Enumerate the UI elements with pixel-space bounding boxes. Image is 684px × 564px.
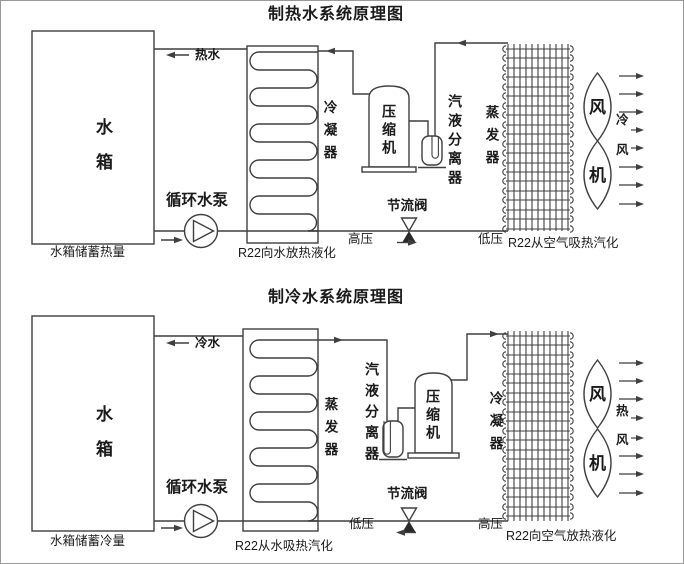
fan-char-bottom: 机 [589, 165, 606, 186]
fan-symbol [584, 73, 611, 209]
tank-caption: 水箱储蓄热量 [50, 245, 125, 261]
heating-diagram-graphics [32, 31, 644, 248]
tank-label: 水箱 [94, 118, 111, 188]
air-char-cold: 冷 [616, 113, 629, 129]
tank-label: 水箱 [94, 405, 111, 475]
airflow-arrows [619, 360, 644, 496]
evaporator-label: 蒸发器 [323, 397, 337, 465]
water-coil-caption: R22从水吸热汽化 [235, 539, 333, 555]
evaporator-air-coil [503, 44, 573, 232]
cooling-title: 制冷水系统原理图 [268, 288, 404, 308]
compressor-label: 压缩机 [426, 389, 440, 443]
separator-symbol [418, 136, 446, 168]
separator-label: 汽液分离器 [448, 94, 462, 189]
condenser-label: 冷凝器 [322, 100, 336, 168]
compressor-label: 压缩机 [382, 104, 396, 158]
valve-label: 节流阀 [387, 198, 428, 215]
condenser-air-coil [503, 331, 573, 521]
pump-label: 循环水泵 [166, 478, 228, 497]
high-pressure-label: 高压 [348, 232, 373, 248]
low-pressure-label: 低压 [349, 517, 374, 533]
separator-symbol [379, 421, 407, 460]
heating-title: 制热水系统原理图 [268, 5, 404, 25]
pump-label: 循环水泵 [166, 191, 228, 210]
fan-char-top: 风 [589, 384, 606, 405]
evaporator-water-coil [243, 329, 318, 531]
condenser-label: 冷凝器 [488, 391, 502, 459]
circulation-pump-symbol [185, 505, 218, 538]
schematic-drawing [1, 1, 684, 564]
fan-char-bottom: 机 [589, 453, 606, 474]
cooling-diagram-graphics [32, 316, 644, 538]
air-char-wind: 风 [616, 143, 629, 159]
cold-water-label: 冷水 [195, 336, 220, 352]
valve-label: 节流阀 [387, 486, 428, 503]
air-coil-caption: R22从空气吸热汽化 [508, 236, 618, 252]
throttle-valve-symbol [402, 218, 417, 242]
condenser-water-coil [247, 46, 318, 243]
hot-water-label: 热水 [195, 48, 220, 64]
high-pressure-label: 高压 [478, 517, 503, 533]
separator-label: 汽液分离器 [365, 362, 379, 467]
airflow-arrows [619, 73, 644, 207]
fan-symbol [584, 360, 611, 497]
circulation-pump-symbol [185, 215, 218, 248]
low-pressure-label: 低压 [478, 232, 503, 248]
fan-char-top: 风 [589, 97, 606, 118]
air-char-hot: 热 [616, 404, 629, 420]
throttle-valve-symbol [402, 508, 417, 532]
air-char-wind: 风 [616, 433, 629, 449]
water-coil-caption: R22向水放热液化 [238, 246, 336, 262]
evaporator-label: 蒸发器 [484, 105, 498, 173]
hvac-schematic-canvas: 制热水系统原理图 水箱 热水 循环水泵 水箱储蓄热量 R22向水放热液化 冷凝器… [0, 0, 684, 564]
air-coil-caption: R22向空气放热液化 [506, 529, 616, 545]
tank-caption: 水箱储蓄冷量 [50, 534, 125, 550]
